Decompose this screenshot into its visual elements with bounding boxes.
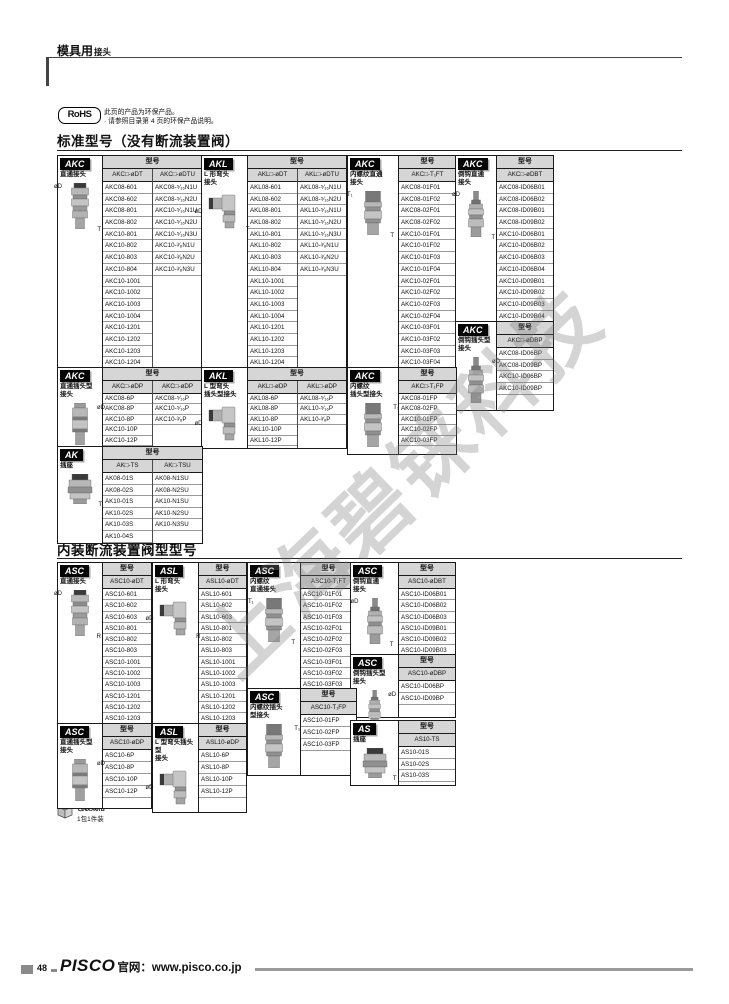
model-cell: AKC10-03F03 (399, 346, 456, 358)
dimension-label: øD (54, 184, 62, 190)
model-cell: AKL10-1003 (248, 299, 297, 311)
model-cell: ASC10-6P (103, 750, 151, 762)
model-cell: ASC10-01FP (301, 715, 356, 727)
model-cell: AKC10-ID06B01 (497, 229, 553, 241)
model-cell: AKL10-10P (248, 425, 297, 435)
model-cell: AKC08-8P (103, 404, 152, 414)
model-cell: ASC10-ID09B01 (399, 623, 455, 634)
block-data-area: 型号AKC□-øDBTAKC08-ID06B01AKC08-ID06B02AKC… (497, 156, 553, 322)
column-header: ASL10-øDT (199, 576, 246, 589)
model-cell: AKL10-1001 (248, 276, 297, 288)
model-cell: AKC10-801 (103, 229, 152, 241)
block-label: L 型弯头插头型接头 (155, 739, 197, 763)
type-header: 型号 (103, 156, 202, 169)
dimension-label: øD (492, 359, 500, 365)
block-label: 内螺纹插头型接头 (350, 383, 397, 399)
block-data-area: 型号AK□-TSAK08-01SAK08-02SAK10-01SAK10-02S… (103, 447, 202, 543)
block-label: L 形弯头接头 (155, 578, 197, 594)
model-cell: AKC10-1003 (103, 299, 152, 311)
model-cell: AKC10-02F02 (399, 287, 456, 299)
model-cell: AKC10-01F01 (399, 229, 456, 241)
model-cell: AKL10-804 (248, 264, 297, 276)
model-cell: ASC10-02FP (301, 727, 356, 739)
dimension-label: øD (388, 692, 396, 698)
model-cell: AS10-02S (399, 759, 455, 771)
product-photo-elbow: øDT (208, 191, 242, 234)
model-cell: AKL10-⁵⁄₁₆P (298, 404, 346, 414)
header-main-text: 模具用 (57, 44, 93, 58)
product-photo-fthread: T₁ (360, 403, 386, 452)
model-cell: ASC10-02F02 (301, 634, 356, 645)
model-cell: AKC08-601 (103, 182, 152, 194)
dimension-label: øD (452, 192, 460, 198)
product-photo-plug: øD (68, 759, 92, 806)
block-data-area: 型号ASC10-T₁FPASC10-01FPASC10-02FPASC10-03… (301, 689, 356, 775)
model-cell: ASL10-601 (199, 589, 246, 600)
series-badge: ASC (60, 726, 89, 738)
block-label: 倒钩插头型接头 (353, 670, 397, 686)
model-cell: AKC10-ID09B03 (497, 299, 553, 311)
model-cell: AKC08-01FP (399, 394, 456, 404)
model-column: AK□-TSUAK08-N1SUAK08-N2SUAK10-N1SUAK10-N… (152, 460, 202, 543)
header-rule (47, 57, 682, 58)
column-header: AK□-TSU (153, 460, 202, 473)
model-cell: AKC10-1001 (103, 276, 152, 288)
model-cell: AKC10-ID09BP (497, 383, 553, 395)
model-cell: AK08-01S (103, 473, 152, 485)
model-columns: AKC□-øDTAKC08-601AKC08-602AKC08-801AKC08… (103, 169, 202, 369)
dimension-label: øD (54, 591, 62, 597)
page-number: 48 (37, 963, 47, 973)
model-cell: AKC08-02FP (399, 404, 456, 414)
product-photo-socket: T (66, 474, 94, 509)
model-column: AKL□-øDTUAKL08-⁵⁄₁₆N1UAKL08-⁵⁄₁₆N2UAKL10… (297, 169, 346, 369)
model-cell: AKL10-³⁄₈P (298, 415, 346, 425)
model-cell: ASC10-03F02 (301, 668, 356, 679)
series-badge: AKC (350, 370, 380, 382)
packaging-spec-note: 1包1件装 (77, 813, 104, 823)
model-cell: ASC10-ID06B02 (399, 600, 455, 611)
column-header: AKC□-øDBP (497, 335, 553, 348)
model-columns: AK□-TSAK08-01SAK08-02SAK10-01SAK10-02SAK… (103, 460, 202, 543)
model-cell: AKC08-⁵⁄₁₆P (153, 394, 202, 404)
block-data-area: 型号AKC□-øDBPAKC08-ID06BPAKC08-ID09BPAKC10… (497, 322, 553, 410)
model-cell: AKC10-02FP (399, 425, 456, 435)
model-cell: AKC10-03FP (399, 436, 456, 446)
block-label-column: ASLL 型弯头插头型接头 øD (153, 724, 199, 812)
model-cell: AK10-N2SU (153, 508, 202, 520)
model-cell: AKC10-³⁄₈N1U (153, 240, 202, 252)
model-columns: AKC□-øDBPAKC08-ID06BPAKC08-ID09BPAKC10-I… (497, 335, 553, 410)
table-block-d6: ASC内螺纹插头型接头T₁型号ASC10-T₁FPASC10-01FPASC10… (247, 688, 357, 776)
model-cell: AK08-N1SU (153, 473, 202, 485)
dimension-label: R (97, 634, 101, 640)
pisco-logo: PISCO (60, 956, 115, 976)
type-header: 型号 (199, 724, 246, 737)
dimension-label: øD (146, 616, 154, 622)
product-photo-fthread: T₁T (261, 598, 287, 647)
model-cell: AKL08-⁵⁄₁₆P (298, 394, 346, 404)
model-cell: AKL10-³⁄₈N1U (298, 240, 346, 252)
type-header: 型号 (497, 156, 553, 169)
type-header: 型号 (399, 156, 456, 169)
block-data-area: 型号ASC10-øDBPASC10-ID06BPASC10-ID09BP (399, 655, 455, 717)
model-cell: AKL10-1202 (248, 334, 297, 346)
table-block-c1: AK插座T型号AK□-TSAK08-01SAK08-02SAK10-01SAK1… (57, 446, 203, 544)
type-header: 型号 (301, 563, 356, 576)
block-data-area: 型号AKL□-øDPAKL08-6PAKL08-8PAKL10-8PAKL10-… (248, 368, 346, 448)
model-cell: AKL08-601 (248, 182, 297, 194)
type-header: 型号 (103, 368, 202, 381)
model-columns: ASC10-T₁FPASC10-01FPASC10-02FPASC10-03FP (301, 702, 356, 775)
model-cell: AKC10-1201 (103, 322, 152, 334)
model-column: AKC□-øDBPAKC08-ID06BPAKC08-ID09BPAKC10-I… (497, 335, 553, 410)
section1-title: 标准型号（没有断流装置阀） (57, 130, 239, 150)
model-cell: AKC10-⁵⁄₁₆P (153, 404, 202, 414)
block-label: 直通插头型接头 (60, 383, 101, 399)
section2-rule (57, 558, 682, 559)
column-header: ASC10-øDBT (399, 576, 455, 589)
model-cell: ASC10-ID06BP (399, 681, 455, 693)
model-cell: AKL08-⁵⁄₁₆N2U (298, 194, 346, 206)
model-cell: AKC08-02F01 (399, 205, 456, 217)
product-photo-elbow: øD (159, 767, 193, 810)
block-label-column: ASC倒钩插头型接头øD (351, 655, 399, 717)
model-column: ASC10-øDPASC10-6PASC10-8PASC10-10PASC10-… (103, 737, 151, 808)
model-cell: ASC10-01F02 (301, 600, 356, 611)
type-header: 型号 (103, 724, 151, 737)
model-cell: ASC10-ID06B01 (399, 589, 455, 600)
column-header: ASC10-T₁FT (301, 576, 356, 589)
model-column: AKC□-T₁FTAKC08-01F01AKC08-01F02AKC08-02F… (399, 169, 456, 369)
dimension-label: T (246, 227, 250, 233)
model-cell: ASC10-802 (103, 634, 151, 645)
series-badge: AK (60, 449, 83, 461)
column-header: AKC□-øDT (103, 169, 152, 182)
dimension-label: T (390, 233, 394, 239)
model-cell: AKL08-6P (248, 394, 297, 404)
model-cell: AKL10-⁵⁄₁₆N1U (298, 205, 346, 217)
block-data-area: 型号ASC10-øDBTASC10-ID06B01ASC10-ID06B02AS… (399, 563, 455, 657)
model-cell: ASC10-601 (103, 589, 151, 600)
model-cell: ASC10-602 (103, 600, 151, 611)
model-column: ASC10-T₁FPASC10-01FPASC10-02FPASC10-03FP (301, 702, 356, 775)
block-label: 倒钩直通接头 (353, 578, 397, 594)
type-header: 型号 (399, 721, 455, 734)
model-column: AKL□-øDTAKL08-601AKL08-602AKL08-801AKL08… (248, 169, 297, 369)
block-label: 内螺纹直通接头 (250, 578, 299, 594)
table-block-a4: AKC倒钩直通接头øDT型号AKC□-øDBTAKC08-ID06B01AKC0… (455, 155, 554, 323)
model-cell: AKC10-1202 (103, 334, 152, 346)
model-cell: ASC10-12P (103, 786, 151, 798)
block-label-column: AS插座T (351, 721, 399, 785)
model-column: ASL10-øDTASL10-601ASL10-602ASL10-603ASL1… (199, 576, 246, 725)
model-cell: ASC10-10P (103, 774, 151, 786)
model-column: AKC□-øDBTAKC08-ID06B01AKC08-ID06B02AKC08… (497, 169, 553, 322)
model-cell: AKL08-8P (248, 404, 297, 414)
column-header: ASC10-øDT (103, 576, 151, 589)
block-label: 直通插头型接头 (60, 739, 101, 755)
block-label-column: AKLL 形弯头接头 øDT (202, 156, 248, 369)
rohs-logo: RoHS (58, 107, 101, 124)
dimension-label: T₁ (248, 599, 254, 605)
table-block-a3: AKC内螺纹直通接头T₁T型号AKC□-T₁FTAKC08-01F01AKC08… (347, 155, 457, 370)
model-column: AKC□-øDTAKC08-601AKC08-602AKC08-801AKC08… (103, 169, 152, 369)
block-data-area: 型号AKL□-øDTAKL08-601AKL08-602AKL08-801AKL… (248, 156, 346, 369)
model-cell: ASC10-1003 (103, 679, 151, 690)
model-cell: AKC10-8P (103, 415, 152, 425)
model-cell: ASC10-1201 (103, 691, 151, 702)
product-photo-elbow: øD (208, 403, 242, 446)
model-cell: AKC10-02F01 (399, 276, 456, 288)
column-header: AS10-TS (399, 734, 455, 747)
block-label: L 型弯头插头型接头 (204, 383, 246, 399)
section1-rule (57, 150, 682, 151)
model-cell: ASC10-ID06B03 (399, 612, 455, 623)
product-photo-barb: øDT (364, 598, 386, 649)
model-cell: AKC10-10P (103, 425, 152, 435)
model-cell: AKL10-⁵⁄₁₆N2U (298, 217, 346, 229)
table-block-e1: ASC直通插头型接头øD型号ASC10-øDPASC10-6PASC10-8PA… (57, 723, 152, 809)
product-photo-barb: øD (465, 357, 487, 408)
rohs-note-line2: · 请参照目录第 4 页的环保产品说明。 (104, 115, 218, 125)
model-cell: ASL10-1202 (199, 702, 246, 713)
model-column: AKC□-øDPAKC08-6PAKC08-8PAKC10-8PAKC10-10… (103, 381, 152, 452)
model-cell: AKC08-ID09B01 (497, 205, 553, 217)
model-cell: AKC10-ID06B03 (497, 252, 553, 264)
series-badge: ASC (250, 691, 279, 703)
table-block-b2: AKLL 型弯头插头型接头 øD型号AKL□-øDPAKL08-6PAKL08-… (201, 367, 347, 449)
model-cell: AKC10-ID06B04 (497, 264, 553, 276)
series-badge: ASL (155, 726, 183, 738)
block-data-area: 型号ASC10-øDTASC10-601ASC10-602ASC10-603AS… (103, 563, 151, 725)
product-photo-fthread: T₁ (261, 724, 287, 773)
dimension-label: øD (195, 421, 203, 427)
table-block-d5: ASC倒钩插头型接头øD型号ASC10-øDBPASC10-ID06BPASC1… (350, 654, 456, 718)
model-cell: AKC10-⁵⁄₁₆N2U (153, 217, 202, 229)
model-cell: ASL10-1001 (199, 657, 246, 668)
block-data-area: 型号ASL10-øDPASL10-6PASL10-8PASL10-10PASL1… (199, 724, 246, 812)
type-header: 型号 (399, 655, 455, 668)
model-cell: AK10-03S (103, 519, 152, 531)
footer-marker (21, 965, 33, 974)
block-label-column: AKC内螺纹插头型接头T₁ (348, 368, 399, 454)
column-header: ASL10-øDP (199, 737, 246, 750)
model-cell: AKC10-12P (103, 436, 152, 446)
block-data-area: 型号AKC□-T₁FTAKC08-01F01AKC08-01F02AKC08-0… (399, 156, 456, 369)
model-columns: AKC□-T₁FPAKC08-01FPAKC08-02FPAKC10-01FPA… (399, 381, 456, 454)
table-block-b3: AKC内螺纹插头型接头T₁型号AKC□-T₁FPAKC08-01FPAKC08-… (347, 367, 457, 455)
model-cell: AKC08-6P (103, 394, 152, 404)
column-header: AKL□-øDTU (298, 169, 346, 182)
model-column: AKL□-øDPAKL08-6PAKL08-8PAKL10-8PAKL10-10… (248, 381, 297, 448)
model-cell: AKL08-801 (248, 205, 297, 217)
series-badge: AKL (204, 158, 233, 170)
block-data-area: 型号ASC10-T₁FTASC10-01F01ASC10-01F02ASC10-… (301, 563, 356, 691)
model-cell: AK10-04S (103, 531, 152, 543)
model-cell: AKC10-03F02 (399, 334, 456, 346)
type-header: 型号 (248, 368, 346, 381)
block-label-column: ASC内螺纹直通接头T₁T (248, 563, 301, 691)
dimension-label: øD (351, 599, 359, 605)
type-header: 型号 (199, 563, 246, 576)
table-block-a2: AKLL 形弯头接头 øDT型号AKL□-øDTAKL08-601AKL08-6… (201, 155, 347, 370)
column-header: AK□-TS (103, 460, 152, 473)
model-columns: AKL□-øDPAKL08-6PAKL08-8PAKL10-8PAKL10-10… (248, 381, 346, 448)
model-cell: AKC08-ID09B02 (497, 217, 553, 229)
model-cell: AKC10-803 (103, 252, 152, 264)
column-header: AKC□-øDBT (497, 169, 553, 182)
block-label: 倒钩直通接头 (458, 171, 495, 187)
model-cell: ASL10-801 (199, 623, 246, 634)
column-header: AKC□-T₁FP (399, 381, 456, 394)
dimension-label: T (97, 227, 101, 233)
product-photo-plug: øD (68, 403, 92, 450)
model-cell: ASL10-802 (199, 634, 246, 645)
series-badge: AS (353, 723, 376, 735)
model-column: AKL□-øDPAKL08-⁵⁄₁₆PAKL10-⁵⁄₁₆PAKL10-³⁄₈P (297, 381, 346, 448)
model-cell: AK10-01S (103, 496, 152, 508)
model-cell: AKC10-³⁄₈N2U (153, 252, 202, 264)
model-column: ASC10-øDBTASC10-ID06B01ASC10-ID06B02ASC1… (399, 576, 455, 657)
product-photo-elbow: øDR (159, 598, 193, 641)
type-header: 型号 (103, 447, 202, 460)
block-data-area: 型号AS10-TSAS10-01SAS10-02SAS10-03S (399, 721, 455, 785)
product-photo-straight: øDR (67, 590, 93, 641)
model-cell: AKC10-03F01 (399, 322, 456, 334)
column-header: AKC□-øDP (153, 381, 202, 394)
table-block-a5: AKC倒钩插头型接头øD型号AKC□-øDBPAKC08-ID06BPAKC08… (455, 321, 554, 411)
model-cell: AKC10-⁵⁄₁₆N3U (153, 229, 202, 241)
block-label-column: ASC内螺纹插头型接头T₁ (248, 689, 301, 775)
model-columns: ASL10-øDTASL10-601ASL10-602ASL10-603ASL1… (199, 576, 246, 725)
model-cell: AKC08-02F02 (399, 217, 456, 229)
series-badge: AKL (204, 370, 233, 382)
product-photo-fthread: T₁T (360, 191, 386, 240)
model-cell: AKC10-804 (103, 264, 152, 276)
column-header: ASC10-T₁FP (301, 702, 356, 715)
block-label-column: AKC直通接头øDT (58, 156, 103, 369)
model-cell: AKC10-02F03 (399, 299, 456, 311)
model-cell: ASC10-03F01 (301, 657, 356, 668)
model-cell: ASC10-ID09B02 (399, 634, 455, 645)
model-cell: AK08-N2SU (153, 485, 202, 497)
model-cell: ASL10-1003 (199, 679, 246, 690)
model-cell: ASC10-01F01 (301, 589, 356, 600)
column-header: AKC□-T₁FT (399, 169, 456, 182)
block-label-column: ASC直通插头型接头øD (58, 724, 103, 808)
model-cell: AKL10-1004 (248, 311, 297, 323)
model-column: AKC□-øDTUAKC08-⁵⁄₁₆N1UAKC08-⁵⁄₁₆N2UAKC10… (152, 169, 202, 369)
model-cell: AKC08-ID06BP (497, 348, 553, 360)
block-label-column: AKC内螺纹直通接头T₁T (348, 156, 399, 369)
model-cell: AKC10-ID09B01 (497, 276, 553, 288)
series-badge: AKC (60, 370, 90, 382)
model-columns: AKL□-øDTAKL08-601AKL08-602AKL08-801AKL08… (248, 169, 346, 369)
product-photo-socket: T (361, 748, 389, 783)
dimension-label: T₁ (393, 405, 399, 411)
model-cell: AKC08-801 (103, 205, 152, 217)
series-badge: ASC (353, 657, 382, 669)
block-label: 插座 (60, 462, 101, 470)
type-header: 型号 (301, 689, 356, 702)
model-column: AKC□-øDPAKC08-⁵⁄₁₆PAKC10-⁵⁄₁₆PAKC10-³⁄₈P (152, 381, 202, 452)
model-cell: AKL10-1201 (248, 322, 297, 334)
model-cell: ASC10-02F03 (301, 645, 356, 656)
model-columns: ASC10-T₁FTASC10-01F01ASC10-01F02ASC10-01… (301, 576, 356, 691)
column-header: AKL□-øDP (248, 381, 297, 394)
model-cell: ASL10-6P (199, 750, 246, 762)
model-cell: ASC10-8P (103, 762, 151, 774)
table-block-b1: AKC直通插头型接头øD型号AKC□-øDPAKC08-6PAKC08-8PAK… (57, 367, 203, 453)
model-cell: AK10-N1SU (153, 496, 202, 508)
block-label: L 形弯头接头 (204, 171, 246, 187)
model-cell: AKC10-ID06BP (497, 371, 553, 383)
model-cell: AKL10-⁵⁄₁₆N3U (298, 229, 346, 241)
block-label-column: ASC倒钩直通接头øDT (351, 563, 399, 657)
model-cell: AKL08-602 (248, 194, 297, 206)
model-columns: ASC10-øDPASC10-6PASC10-8PASC10-10PASC10-… (103, 737, 151, 808)
dimension-label: T₁ (294, 726, 300, 732)
model-cell: AKC10-01F04 (399, 264, 456, 276)
model-cell: AKC08-01F02 (399, 194, 456, 206)
footer-brand-line: PISCO 官网：www.pisco.co.jp (60, 956, 242, 976)
series-badge: ASC (250, 565, 279, 577)
model-cell: ASC10-801 (103, 623, 151, 634)
block-data-area: 型号ASC10-øDPASC10-6PASC10-8PASC10-10PASC1… (103, 724, 151, 808)
product-photo-barb: øDT (465, 191, 487, 242)
model-cell: AKL10-³⁄₈N3U (298, 264, 346, 276)
model-cell: ASC10-1001 (103, 657, 151, 668)
column-header: ASC10-øDP (103, 737, 151, 750)
table-block-d3: ASC内螺纹直通接头T₁T型号ASC10-T₁FTASC10-01F01ASC1… (247, 562, 357, 692)
model-cell: ASC10-ID09BP (399, 693, 455, 705)
block-label-column: AKC倒钩直通接头øDT (456, 156, 497, 322)
model-cell: ASL10-603 (199, 612, 246, 623)
series-badge: AKC (350, 158, 380, 170)
block-label: 倒钩插头型接头 (458, 337, 495, 353)
model-column: ASC10-øDTASC10-601ASC10-602ASC10-603ASC1… (103, 576, 151, 725)
dimension-label: R (196, 634, 200, 640)
dimension-label: T (393, 776, 397, 782)
model-cell: AKC08-⁵⁄₁₆N1U (153, 182, 202, 194)
block-data-area: 型号AKC□-øDTAKC08-601AKC08-602AKC08-801AKC… (103, 156, 202, 369)
type-header: 型号 (248, 156, 346, 169)
dimension-label: T (390, 642, 394, 648)
model-cell: AKC10-802 (103, 240, 152, 252)
dimension-label: øD (146, 785, 154, 791)
series-badge: AKC (458, 158, 488, 170)
model-cell: AS10-03S (399, 770, 455, 782)
model-cell: AKL10-802 (248, 240, 297, 252)
column-header: AKL□-øDP (298, 381, 346, 394)
model-cell: AKL08-802 (248, 217, 297, 229)
table-block-d4: ASC倒钩直通接头øDT型号ASC10-øDBTASC10-ID06B01ASC… (350, 562, 456, 658)
model-cell: AKC08-ID06B01 (497, 182, 553, 194)
table-block-d2: ASLL 形弯头接头 øDR型号ASL10-øDTASL10-601ASL10-… (152, 562, 247, 726)
dimension-label: T (291, 640, 295, 646)
column-header: AKL□-øDT (248, 169, 297, 182)
catalog-page: 模具用接头 RoHS 此页的产品为环保产品。 · 请参照目录第 4 页的环保产品… (0, 0, 729, 1004)
block-label: 内螺纹插头型接头 (250, 704, 299, 720)
block-data-area: 型号ASL10-øDTASL10-601ASL10-602ASL10-603AS… (199, 563, 246, 725)
model-cell: ASL10-1002 (199, 668, 246, 679)
model-cell: AKL10-801 (248, 229, 297, 241)
model-cell: AKC08-ID06B02 (497, 194, 553, 206)
column-header: ASC10-øDBP (399, 668, 455, 681)
model-cell: ASC10-01F03 (301, 612, 356, 623)
model-cell: ASL10-8P (199, 762, 246, 774)
